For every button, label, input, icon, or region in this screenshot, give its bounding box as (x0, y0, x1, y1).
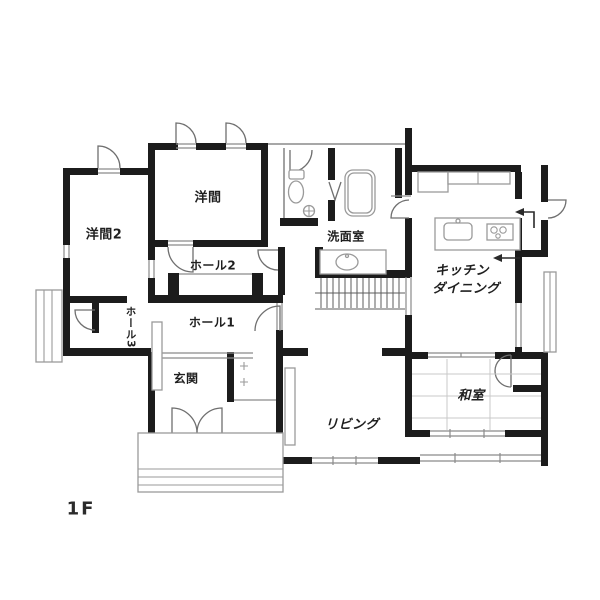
genkan-storage-marks (240, 362, 248, 386)
floorplan-canvas: 洋間 洋間2 ホール2 ホール1 ホール3 洗面室 キッチン ダイニング 玄関 … (0, 0, 600, 600)
room-label-washitsu: 和室 (457, 385, 484, 404)
room-label-youma: 洋間 (194, 187, 221, 206)
room-label-hall3: ホール3 (124, 306, 139, 349)
shoe-cabinet (152, 322, 162, 390)
entrance-deck-steps (138, 433, 283, 492)
youma2-door-icon (98, 146, 120, 168)
room-label-kitchen-line1: キッチン (435, 260, 489, 279)
entrance-door-right-icon (197, 408, 222, 433)
fixtures (152, 170, 520, 445)
room-label-senmenshitsu: 洗面室 (327, 228, 365, 245)
corner-sink-icon (303, 205, 315, 217)
entrance-door-left-icon (172, 408, 197, 433)
staircase (315, 278, 405, 309)
washbasin-icon (320, 250, 386, 274)
bathtub-icon (345, 170, 375, 216)
washitsu-closet-doors-icon (495, 355, 511, 387)
kitchen-backdoor-icon (548, 200, 566, 218)
room-label-hall2: ホール2 (190, 257, 236, 274)
bay-window-west (36, 290, 62, 362)
tv-board (285, 368, 295, 445)
bay-window-east (544, 272, 556, 352)
stove-icon (487, 224, 513, 240)
kitchen-counter (418, 172, 510, 192)
youma-door1-icon (176, 123, 196, 143)
toilet-icon (289, 170, 305, 203)
youma-door2-icon (226, 123, 246, 143)
room-label-kitchen-line2: ダイニング (432, 278, 500, 297)
room-label-youma2: 洋間2 (86, 224, 123, 243)
wc-door-icon (290, 150, 312, 172)
washroom-door-icon (391, 200, 409, 218)
hall2-corridor-door-icon (258, 250, 278, 270)
bath-folding-door-icon (329, 182, 341, 200)
room-label-living: リビング (325, 414, 379, 433)
floor-label: 1F (67, 499, 96, 520)
room-label-genkan: 玄関 (173, 370, 198, 387)
room-label-hall1: ホール1 (189, 314, 235, 331)
kitchen-island (435, 218, 520, 250)
hall1-living-door-icon (255, 306, 280, 331)
